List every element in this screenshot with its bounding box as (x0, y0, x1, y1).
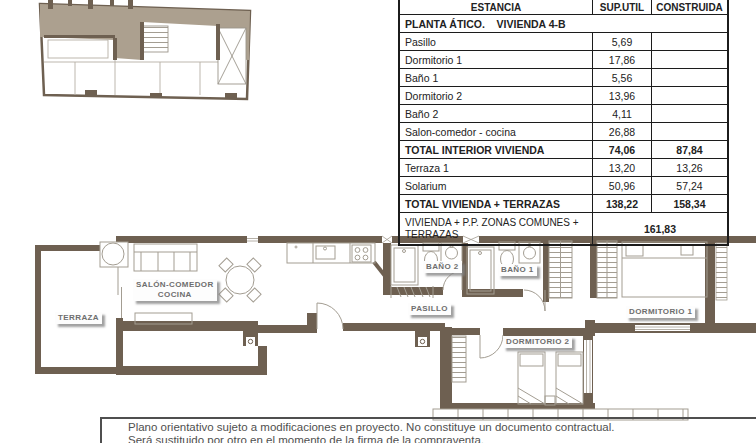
dorm2-window (584, 340, 592, 393)
table-row-total-interior: TOTAL INTERIOR VIVIENDA74,0687,84 (399, 141, 728, 159)
disclaimer-line1: Plano orientativo sujeto a modificacione… (128, 421, 756, 434)
terrace-table-icon (100, 242, 128, 267)
sofa-icon (134, 244, 197, 271)
room-label-bano1: BAÑO 1 (498, 264, 537, 276)
room-label-pasillo: PASILLO (408, 303, 451, 315)
table-row: Terraza 113,2013,26 (399, 159, 728, 177)
table-header-row: ESTANCIA SUP.UTIL CONSTRUIDA (399, 0, 728, 15)
room-label-bano2: BAÑO 2 (423, 261, 462, 273)
single-beds-icon (518, 352, 583, 405)
table-row: Solarium50,9657,24 (399, 177, 728, 195)
area-table: ESTANCIA SUP.UTIL CONSTRUIDA PLANTA ÁTIC… (398, 0, 729, 246)
disclaimer-line2: Será sustituido por otro en el momento d… (128, 434, 756, 443)
sink-icon (441, 243, 462, 263)
dining-table-icon (219, 258, 261, 302)
summary-value: 161,83 (593, 213, 729, 246)
col-header-sup-util: SUP.UTIL (593, 0, 652, 15)
key-plan (40, 0, 250, 99)
room-label-dormitorio1: DORMITORIO 1 (626, 306, 695, 318)
summary-label: VIVIENDA + P.P. ZONAS COMUNES + TERRAZAS (399, 213, 593, 246)
room-label-salon: SALÓN-COMEDOR COCINA (133, 279, 217, 301)
table-row-total-vivienda: TOTAL VIVIENDA + TERRAZAS138,22158,34 (399, 195, 728, 213)
stove-icon (352, 245, 371, 262)
col-header-estancia: ESTANCIA (399, 0, 593, 15)
plan-sheet: TERRAZA SALÓN-COMEDOR COCINA PASILLO BAÑ… (0, 0, 756, 443)
section-title: PLANTA ÁTICO. VIVIENDA 4-B (399, 15, 728, 33)
table-summary-row: VIVIENDA + P.P. ZONAS COMUNES + TERRAZAS… (399, 213, 728, 246)
room-label-dormitorio2: DORMITORIO 2 (503, 336, 572, 348)
disclaimer-box: Plano orientativo sujeto a modificacione… (100, 417, 756, 443)
key-plan-stairwell-icon (218, 28, 246, 84)
key-plan-stairs-icon (142, 26, 168, 52)
table-row: Dormitorio 117,86 (399, 51, 728, 69)
double-bed-icon (622, 242, 707, 297)
table-row: Baño 24,11 (399, 105, 728, 123)
col-header-construida: CONSTRUIDA (652, 0, 729, 15)
table-row: Dormitorio 213,96 (399, 87, 728, 105)
table-section-row: PLANTA ÁTICO. VIVIENDA 4-B (399, 15, 728, 33)
room-label-terraza: TERRAZA (55, 312, 102, 324)
table-row: Baño 15,56 (399, 69, 728, 87)
table-row: Pasillo5,69 (399, 33, 728, 51)
kitchen-counter-icon (287, 243, 375, 263)
table-row: Salon-comedor - cocina26,88 (399, 123, 728, 141)
dorm1-window (635, 325, 690, 331)
